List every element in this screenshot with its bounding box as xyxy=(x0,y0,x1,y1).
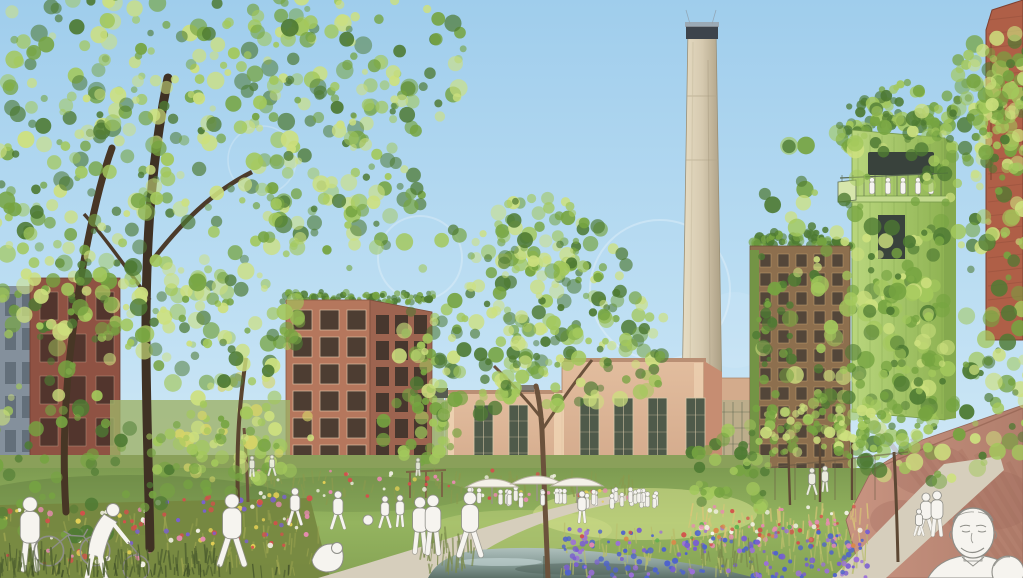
chimney xyxy=(682,10,722,400)
chimney-cap xyxy=(686,26,718,39)
chimney-shaft xyxy=(682,28,722,400)
park-rendering: PARKCAFE xyxy=(0,0,1023,578)
pond-reflection-light xyxy=(458,558,542,566)
rendering-canvas: PARKCAFE xyxy=(0,0,1023,578)
ball xyxy=(363,515,373,525)
highrise-green-facade xyxy=(750,250,759,480)
